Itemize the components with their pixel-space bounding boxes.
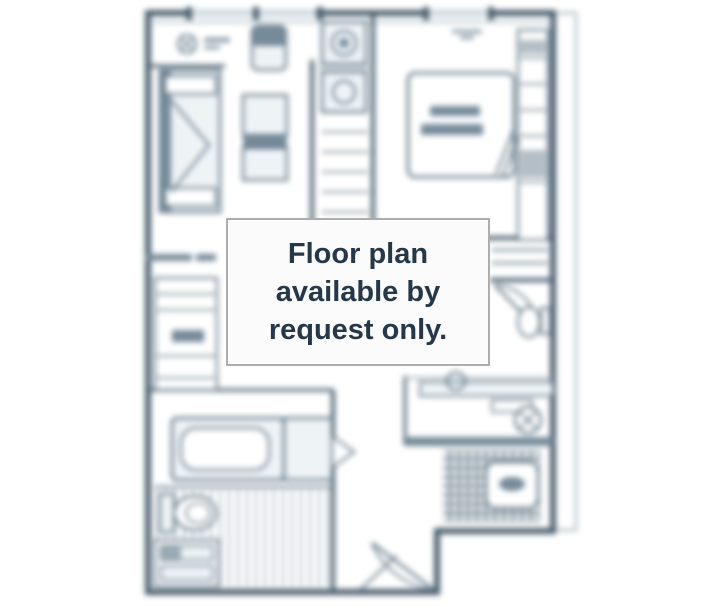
shower bbox=[284, 418, 332, 480]
notice-line-1: Floor plan bbox=[288, 235, 428, 273]
bed-pillow bbox=[165, 76, 216, 94]
dryer-icon bbox=[322, 72, 366, 112]
room-label-line2 bbox=[421, 124, 483, 135]
floor-plan-page: Floor plan available by request only. bbox=[0, 0, 712, 606]
notice-line-2: available by bbox=[276, 273, 440, 311]
counter-edge bbox=[405, 437, 553, 446]
window-master bbox=[426, 9, 490, 17]
floor-plan-notice-box: Floor plan available by request only. bbox=[226, 218, 490, 366]
notice-line-3: request only. bbox=[269, 311, 447, 349]
main-bathroom bbox=[155, 418, 354, 587]
dresser bbox=[243, 95, 287, 135]
small-label-text bbox=[146, 254, 192, 261]
master-closet bbox=[518, 30, 548, 240]
room-label-line1 bbox=[430, 106, 480, 116]
toilet-tank bbox=[160, 494, 174, 532]
kitchen-counter bbox=[420, 382, 553, 396]
dimension-text-marks bbox=[204, 38, 230, 42]
toilet-2 bbox=[518, 307, 540, 337]
